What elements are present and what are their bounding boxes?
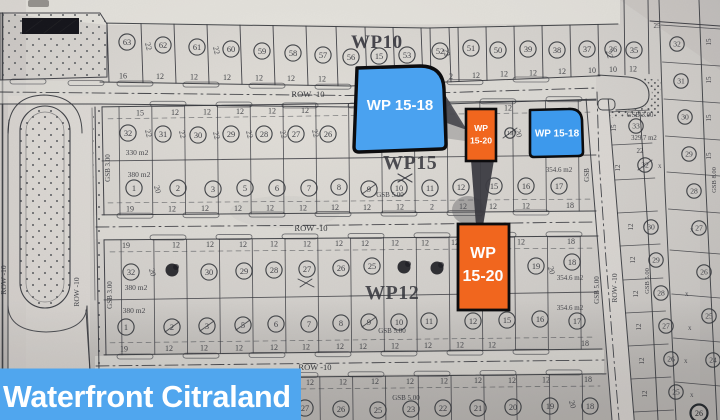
svg-text:WP: WP [470,245,496,262]
svg-text:WP 15-18: WP 15-18 [367,97,433,114]
svg-text:WP: WP [474,123,488,133]
svg-text:15-20: 15-20 [463,268,504,285]
svg-text:WP 15-18: WP 15-18 [535,129,580,140]
svg-text:15-20: 15-20 [470,136,492,146]
svg-text:Waterfront Citraland: Waterfront Citraland [3,380,291,414]
